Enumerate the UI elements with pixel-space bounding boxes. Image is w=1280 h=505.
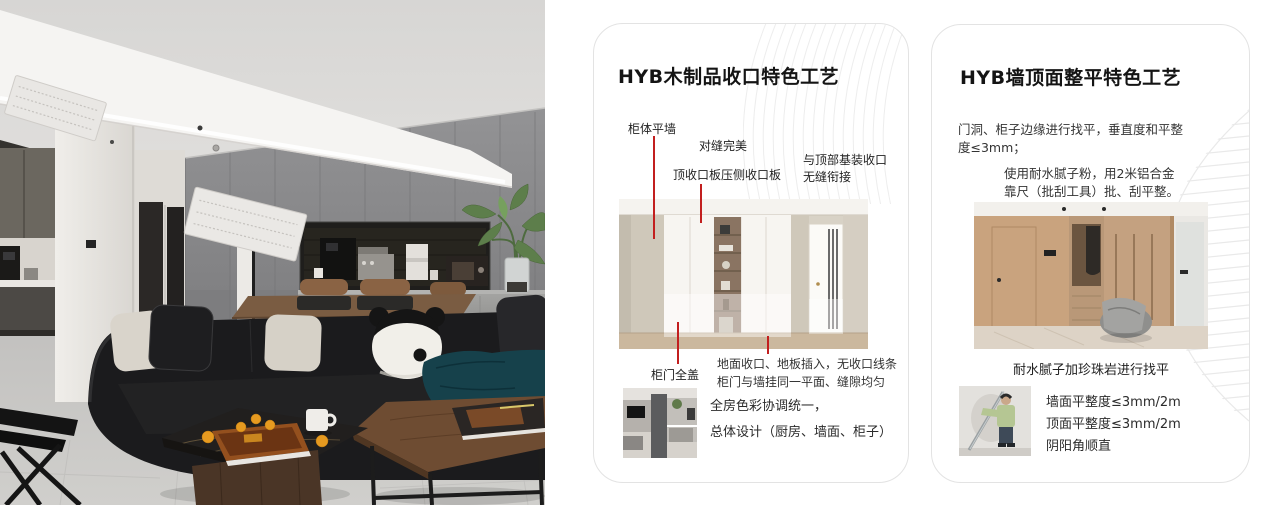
- spec-wall-flatness: 墙面平整度≤3mm/2m: [1046, 391, 1181, 410]
- card-wall-leveling-craft: HYB墙顶面整平特色工艺 门洞、柜子边缘进行找平，垂直度和平整 度≤3mm； 使…: [931, 24, 1250, 483]
- card2-title: HYB墙顶面整平特色工艺: [960, 63, 1181, 90]
- thermostat: [86, 240, 96, 248]
- vintage-radio: [446, 256, 488, 286]
- callout-perfect-seam: 对缝完美: [699, 137, 747, 154]
- callout-line-3: [677, 322, 679, 364]
- para-putty-line2: 靠尺（批刮工具）批、刮平整。: [1004, 183, 1179, 201]
- caption-putty-perlite: 耐水腻子加珍珠岩进行找平: [974, 359, 1208, 378]
- para-leveling-line1: 门洞、柜子边缘进行找平，垂直度和平整: [958, 121, 1183, 139]
- cream-pillow-2: [264, 314, 322, 372]
- card1-title: HYB木制品收口特色工艺: [618, 62, 839, 89]
- callout-cabinet-flush-wall: 柜体平墙: [628, 120, 676, 137]
- wardrobe-render-image: [619, 199, 868, 349]
- ceiling-spotlight: [198, 126, 203, 131]
- page: { "colors": { "accent_red": "#c21f1f", "…: [0, 0, 1280, 505]
- callout-top-panel: 顶收口板压侧收口板: [673, 166, 781, 183]
- card-wood-finish-craft: HYB木制品收口特色工艺 柜体平墙 对缝完美 顶收口板压侧收口板 与顶部基装收口…: [593, 23, 909, 483]
- spec-corners-straight: 阴阳角顺直: [1046, 435, 1111, 454]
- note-color-line2: 总体设计（厨房、墙面、柜子）: [710, 421, 892, 440]
- living-room-scene: [0, 0, 545, 505]
- para-leveling-line2: 度≤3mm；: [958, 139, 1026, 157]
- note-color-line1: 全房色彩协调统一，: [710, 395, 827, 414]
- callout-top-joint-line1: 与顶部基装收口: [803, 151, 887, 168]
- callout-door-full-cover: 柜门全盖: [651, 366, 699, 383]
- living-room-photo: [0, 0, 545, 505]
- callout-line-1: [653, 136, 655, 239]
- note-floor-line1: 地面收口、地板插入，无收口线条: [717, 355, 897, 372]
- spec-ceiling-flatness: 顶面平整度≤3mm/2m: [1046, 413, 1181, 432]
- worker-thumbnail: [959, 386, 1031, 456]
- callout-line-2: [700, 184, 702, 223]
- black-pillow: [148, 304, 213, 371]
- interior-thumbnail: [623, 388, 697, 458]
- coffee-machine: [0, 246, 20, 282]
- kitchen: [0, 140, 57, 336]
- note-floor-line2: 柜门与墙挂同一平面、缝隙均匀: [717, 373, 885, 390]
- para-putty-line1: 使用耐水腻子粉，用2米铝合金: [1004, 165, 1174, 183]
- hallway-photo: [974, 202, 1208, 349]
- callout-top-joint-line2: 无缝衔接: [803, 168, 851, 185]
- callout-line-4: [767, 336, 769, 354]
